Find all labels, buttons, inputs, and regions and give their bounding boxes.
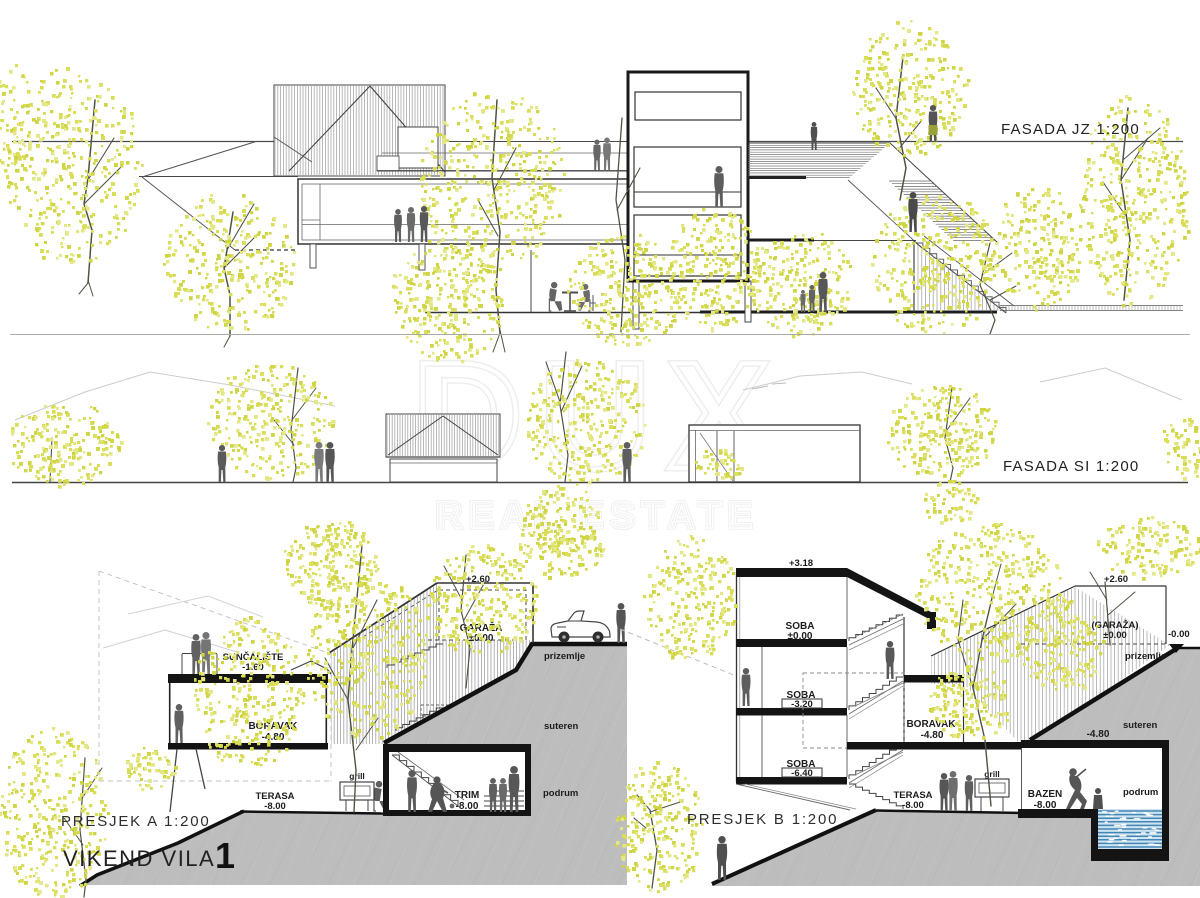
svg-text:+3.18: +3.18 <box>789 558 813 569</box>
svg-text:grill: grill <box>349 771 365 781</box>
svg-text:suteren: suteren <box>1123 720 1158 731</box>
svg-text:TRIM: TRIM <box>455 790 479 801</box>
svg-text:-4.80: -4.80 <box>921 730 944 741</box>
svg-text:PRESJEK A 1:200: PRESJEK A 1:200 <box>61 813 211 830</box>
svg-text:PRESJEK B 1:200: PRESJEK B 1:200 <box>687 811 838 828</box>
svg-text:prizemlje: prizemlje <box>1125 651 1166 662</box>
svg-text:podrum: podrum <box>543 788 578 799</box>
svg-text:VIKEND VILA: VIKEND VILA <box>63 846 215 871</box>
svg-text:-3.20: -3.20 <box>791 699 813 710</box>
svg-text:podrum: podrum <box>1123 787 1158 798</box>
svg-text:1: 1 <box>215 835 235 876</box>
svg-text:-8.00: -8.00 <box>456 801 479 812</box>
svg-text:-6.40: -6.40 <box>791 768 813 779</box>
svg-text:-0.00: -0.00 <box>1168 629 1190 640</box>
svg-text:grill: grill <box>984 769 1000 779</box>
svg-text:±0.00: ±0.00 <box>1103 630 1127 641</box>
svg-text:±0.00: ±0.00 <box>788 631 813 642</box>
svg-text:+2.60: +2.60 <box>1104 574 1128 585</box>
svg-text:FASADA JZ 1:200: FASADA JZ 1:200 <box>1001 121 1140 138</box>
svg-text:+2.60: +2.60 <box>466 574 490 585</box>
svg-text:prizemlje: prizemlje <box>544 651 585 662</box>
svg-text:-8.00: -8.00 <box>1034 800 1057 811</box>
svg-text:FASADA SI 1:200: FASADA SI 1:200 <box>1003 458 1139 475</box>
svg-text:-4.80: -4.80 <box>1087 729 1110 740</box>
svg-text:BAZEN: BAZEN <box>1028 789 1062 800</box>
svg-text:suteren: suteren <box>544 721 579 732</box>
svg-text:BORAVAK: BORAVAK <box>906 719 956 730</box>
svg-text:-8.00: -8.00 <box>264 801 286 812</box>
svg-text:-8.00: -8.00 <box>902 800 924 811</box>
